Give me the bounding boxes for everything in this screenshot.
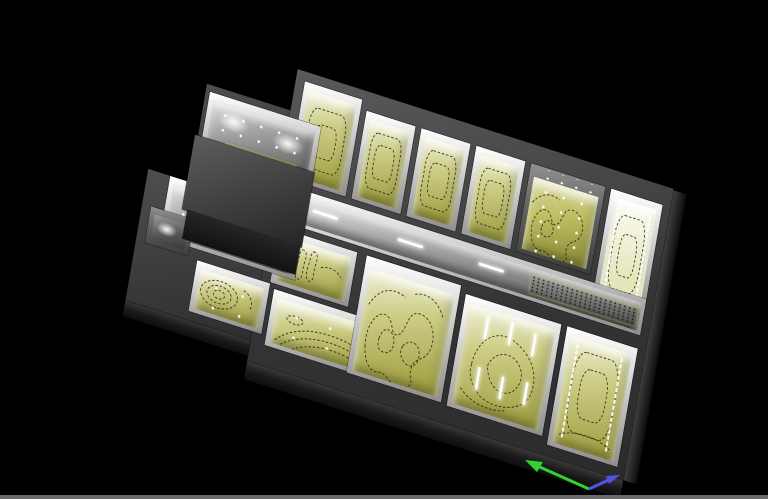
isolux-floor (452, 302, 555, 430)
isolux-contours (357, 119, 410, 209)
isolux-floor (467, 154, 520, 244)
linear-luminaire (313, 209, 339, 220)
isolux-contours (452, 302, 555, 430)
green-axis-arrow (525, 460, 589, 489)
blue-axis-arrow (589, 475, 620, 489)
axis-gizmo (503, 437, 643, 495)
bottom-window-edge (0, 495, 768, 499)
light-pool (155, 220, 178, 240)
isolux-contours (467, 154, 520, 244)
linear-luminaire (478, 262, 504, 273)
linear-luminaire (398, 238, 424, 249)
isolux-floor (412, 136, 465, 226)
3d-lighting-scene-viewport[interactable] (0, 0, 768, 499)
isolux-floor (357, 119, 410, 209)
isolux-contours (412, 136, 465, 226)
